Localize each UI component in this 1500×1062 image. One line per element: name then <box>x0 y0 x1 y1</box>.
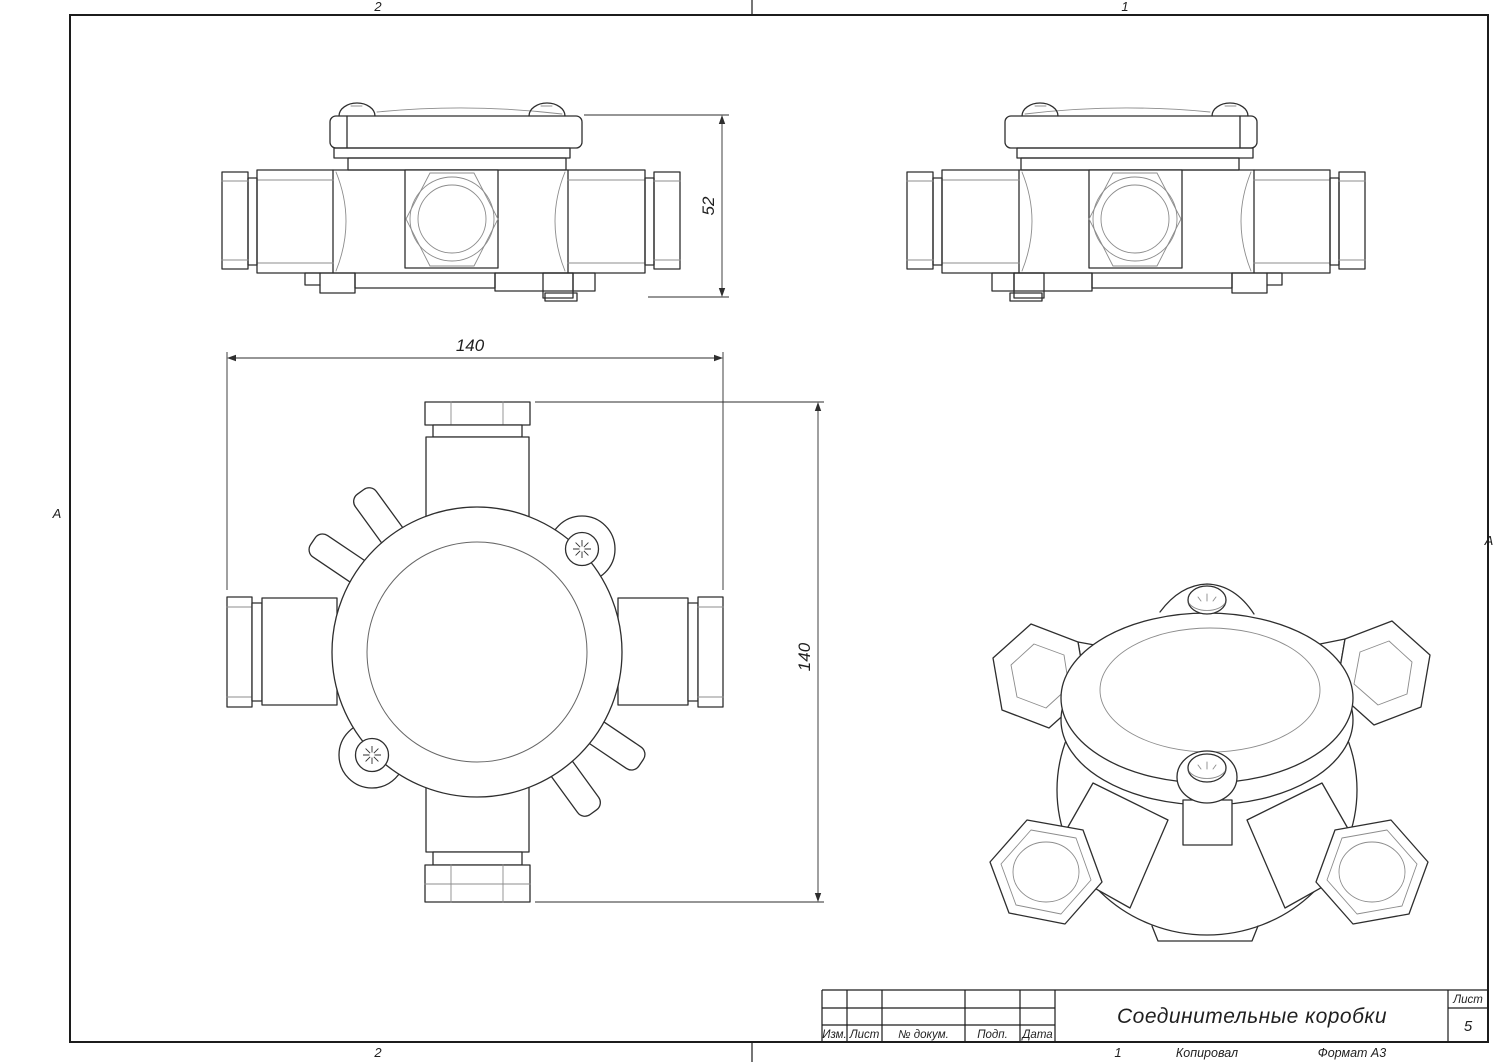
dim-value-52: 52 <box>699 196 718 215</box>
iso-screw-rear <box>1160 584 1254 614</box>
iso-hex-nut-front-left <box>990 820 1102 924</box>
plan-gland-left <box>227 597 337 707</box>
dim-value-140-height: 140 <box>795 642 814 671</box>
document-title: Соединительные коробки <box>1117 1005 1387 1028</box>
mounting-feet <box>305 273 595 301</box>
zone-marker-bottom-left: 2 <box>373 1045 382 1060</box>
cable-gland-left <box>222 172 257 269</box>
plan-screw-top-right <box>566 533 599 566</box>
cable-gland-right <box>645 172 680 269</box>
zone-marker-top-left: 2 <box>373 0 382 14</box>
plan-gland-bottom <box>425 780 530 902</box>
sheet-number: 5 <box>1464 1018 1473 1035</box>
row-marker-left: А <box>52 506 62 521</box>
format-label: Формат А3 <box>1318 1046 1386 1060</box>
zone-marker-bottom-right: 1 <box>1114 1045 1121 1060</box>
col-header-docnum: № докум. <box>898 1029 949 1041</box>
title-block: Изм. Лист № докум. Подп. Дата Соединител… <box>822 990 1488 1042</box>
row-marker-right: А <box>1484 533 1494 548</box>
plan-gland-right <box>618 597 723 707</box>
col-header-izm: Изм. <box>822 1029 847 1041</box>
col-header-list: Лист <box>849 1029 880 1041</box>
drawing-sheet: 2 1 2 1 А А <box>0 0 1500 1062</box>
dim-value-140-width: 140 <box>456 336 485 355</box>
front-view: 52 <box>222 103 729 301</box>
col-header-podp: Подп. <box>977 1029 1008 1041</box>
phillips-screw-icon <box>573 540 591 558</box>
rear-view <box>907 103 1365 301</box>
drawing-canvas: 2 1 2 1 А А <box>0 0 1500 1062</box>
plan-view: 140 140 <box>227 336 824 902</box>
cover-lid <box>330 103 582 158</box>
col-header-data: Дата <box>1020 1029 1052 1041</box>
plan-gland-top <box>425 402 530 520</box>
iso-hex-nut-front-right <box>1316 820 1428 924</box>
sheet-label: Лист <box>1452 994 1483 1006</box>
screw-dome <box>339 103 375 116</box>
dimension-52: 52 <box>584 115 729 297</box>
cable-gland-front <box>405 170 498 268</box>
phillips-screw-icon <box>363 746 381 764</box>
plan-screw-bottom-left <box>356 739 389 772</box>
copied-by-label: Копировал <box>1176 1046 1238 1060</box>
zone-marker-top-right: 1 <box>1121 0 1128 14</box>
isometric-view <box>990 584 1430 941</box>
